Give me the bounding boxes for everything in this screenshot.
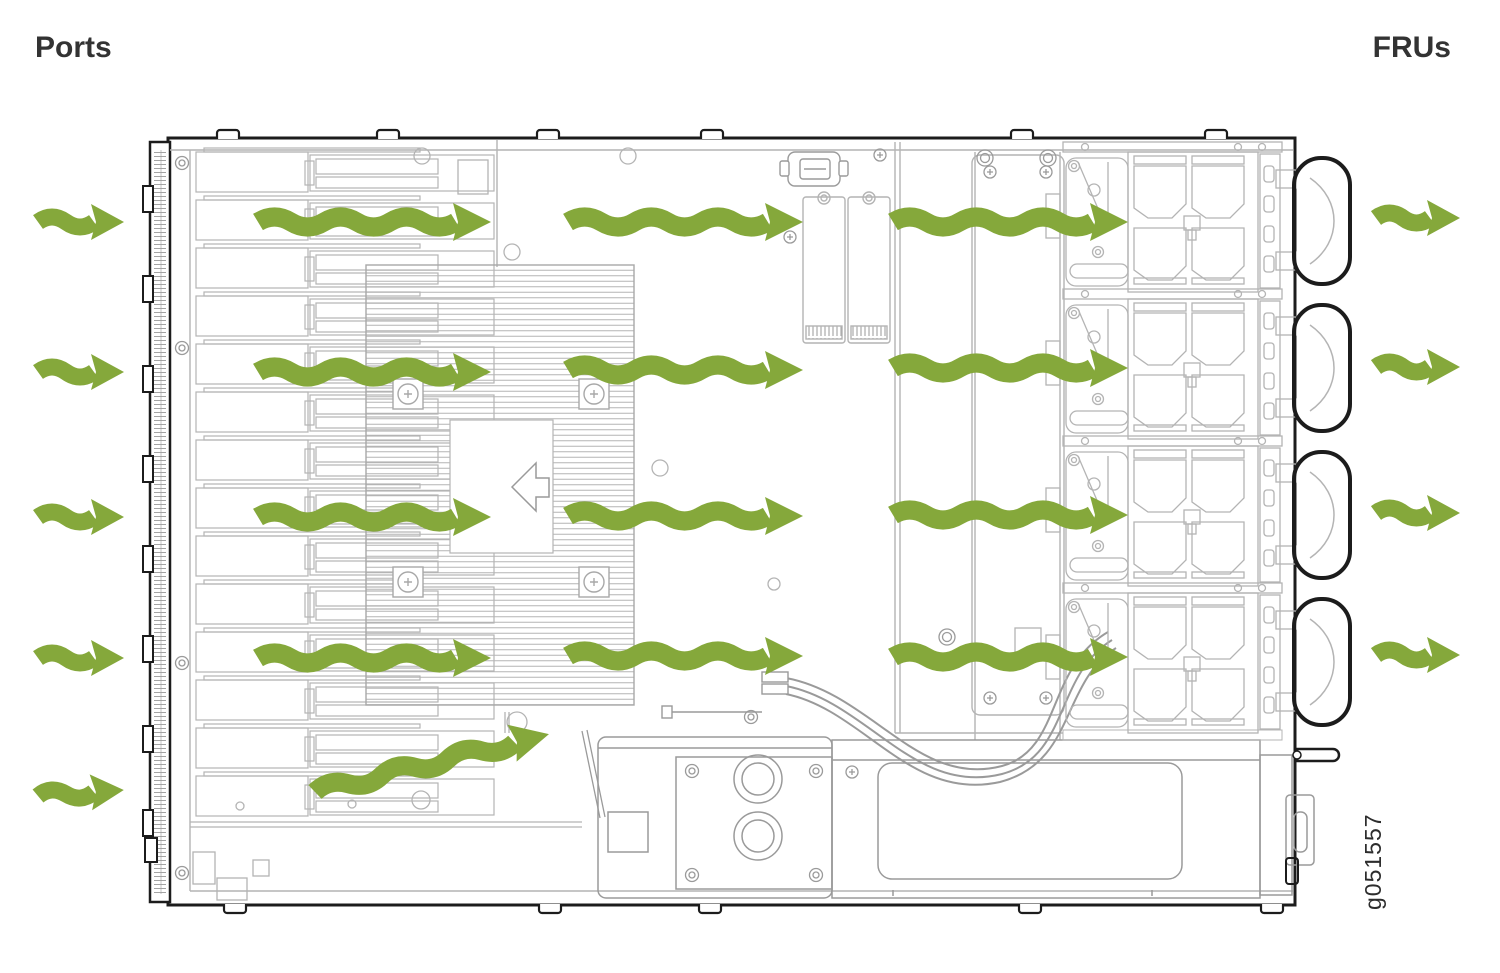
airflow-arrow — [38, 640, 124, 676]
heatsink-screw — [393, 567, 423, 597]
chassis-tab — [539, 904, 561, 913]
port-faceplate — [143, 142, 170, 902]
faceplate-notch — [143, 276, 153, 302]
fan-handle — [1294, 305, 1350, 431]
chassis-tab — [701, 130, 723, 139]
faceplate-notch — [143, 726, 153, 752]
faceplate-notch — [143, 810, 153, 836]
airflow-arrow — [38, 354, 124, 390]
faceplate-notch — [143, 456, 153, 482]
chassis-tab — [217, 130, 239, 139]
chassis-tab — [1261, 904, 1283, 913]
heatsink-screw — [579, 567, 609, 597]
airflow-arrow — [38, 204, 124, 240]
fan-handle — [1294, 599, 1350, 725]
airflow-arrow — [37, 772, 125, 814]
airflow-arrow — [1376, 200, 1460, 236]
airflow-arrow — [38, 499, 124, 535]
faceplate-notch — [143, 636, 153, 662]
ports-label: Ports — [35, 31, 112, 64]
faceplate-notch — [143, 546, 153, 572]
airflow-arrow — [1376, 349, 1460, 385]
chassis-tab — [537, 130, 559, 139]
chassis-tab — [224, 904, 246, 913]
chassis-tab — [699, 904, 721, 913]
fan-handle — [1294, 452, 1350, 578]
figure-id: g051557 — [1360, 813, 1386, 910]
airflow-diagram: Ports FRUs g051557 — [0, 0, 1500, 973]
heatsink-screw — [579, 379, 609, 409]
chassis-tab — [1019, 904, 1041, 913]
heatsink-screw — [393, 379, 423, 409]
chassis-tab — [377, 130, 399, 139]
chassis-top-view: Ports FRUs g051557 — [0, 0, 1500, 973]
battery-holder — [780, 152, 848, 186]
chassis-tab — [1011, 130, 1033, 139]
airflow-arrow — [1376, 637, 1460, 673]
chassis-tab — [1205, 130, 1227, 139]
frus-label: FRUs — [1373, 31, 1451, 64]
airflow-arrow — [1376, 495, 1460, 531]
fan-handle — [1294, 158, 1350, 284]
faceplate-notch — [143, 366, 153, 392]
heatsink — [366, 265, 634, 705]
faceplate-notch — [143, 186, 153, 212]
psu-latch-lever — [1297, 749, 1339, 761]
